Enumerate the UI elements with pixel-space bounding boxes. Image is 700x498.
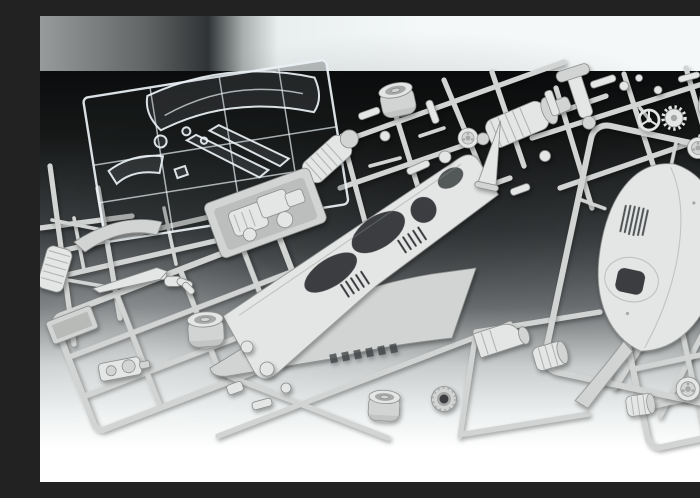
brake-drum xyxy=(625,393,656,417)
hub-part xyxy=(432,387,457,412)
tyre xyxy=(368,390,401,424)
clear-lens xyxy=(154,135,168,149)
clear-lens xyxy=(182,127,191,136)
wheel-disc xyxy=(458,128,478,148)
model-kit-photo xyxy=(40,16,700,482)
wheel-disc xyxy=(676,377,700,401)
sprue-scene xyxy=(40,16,700,482)
tyre xyxy=(187,311,225,350)
